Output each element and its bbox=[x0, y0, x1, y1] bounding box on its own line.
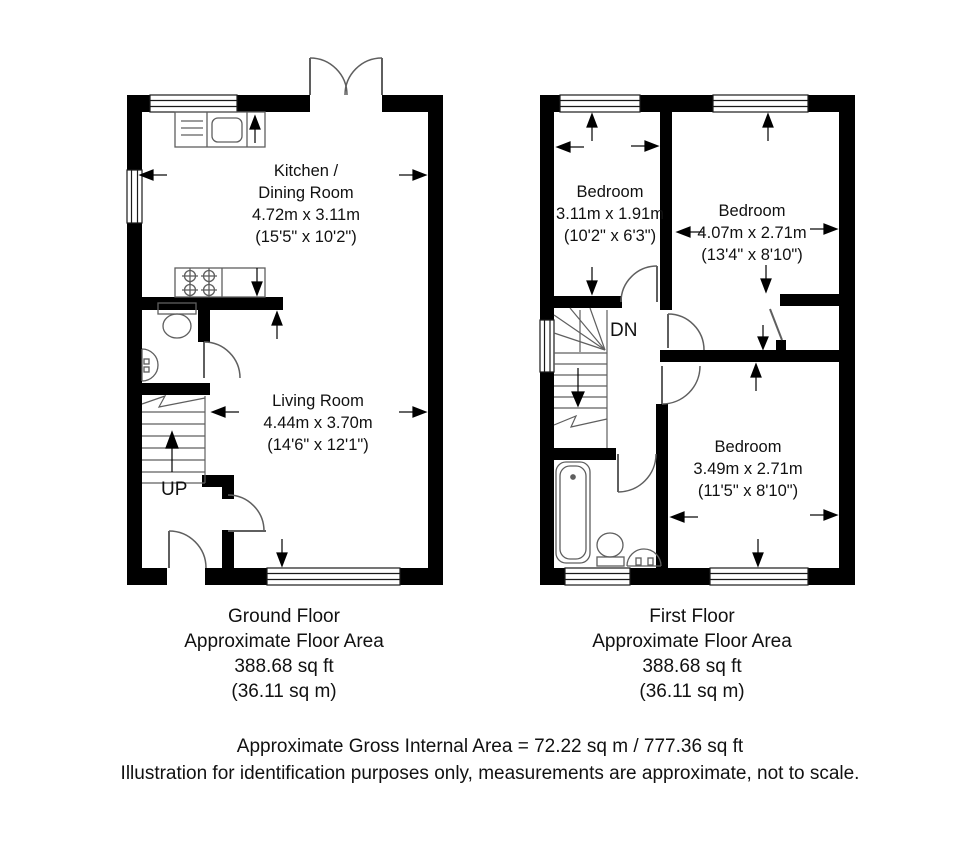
bathroom-door bbox=[618, 454, 656, 492]
dimension-arrow bbox=[671, 512, 698, 522]
bedroom3-label: Bedroom 3.49m x 2.71m (11'5" x 8'10") bbox=[693, 436, 802, 502]
wash-basin-icon bbox=[627, 549, 661, 566]
wash-basin-icon bbox=[142, 349, 158, 381]
entrance-door bbox=[169, 531, 206, 568]
floor-area-label: Approximate Floor Area bbox=[184, 629, 384, 654]
closet-jamb bbox=[776, 340, 786, 350]
window bbox=[710, 568, 808, 585]
room-dimensions-imperial: (14'6" x 12'1") bbox=[263, 434, 372, 456]
living-room-door bbox=[228, 495, 266, 531]
floor-area-sqm: (36.11 sq m) bbox=[592, 679, 792, 704]
room-dimensions-metric: 3.49m x 2.71m bbox=[693, 458, 802, 480]
window bbox=[713, 95, 808, 112]
bathroom-right-wall bbox=[656, 404, 668, 568]
room-dimensions-imperial: (11'5" x 8'10") bbox=[693, 480, 802, 502]
bathroom-top-wall bbox=[554, 448, 616, 460]
window bbox=[150, 95, 237, 112]
disclaimer: Illustration for identification purposes… bbox=[121, 760, 860, 787]
stairs-down bbox=[554, 308, 607, 448]
bedroom1-label: Bedroom 3.11m x 1.91m (10'2" x 6'3") bbox=[556, 181, 664, 247]
ground-floor-caption: Ground Floor Approximate Floor Area 388.… bbox=[184, 604, 384, 704]
room-name: Bedroom bbox=[556, 181, 664, 203]
room-dimensions-imperial: (13'4" x 8'10") bbox=[697, 244, 806, 266]
dimension-arrow bbox=[277, 539, 287, 566]
patio-double-door bbox=[310, 58, 382, 95]
dimension-arrow bbox=[810, 510, 837, 520]
wc-fixtures bbox=[142, 303, 196, 381]
floor-area-sqft: 388.68 sq ft bbox=[592, 654, 792, 679]
room-name: Dining Room bbox=[252, 182, 360, 204]
footer-notes: Approximate Gross Internal Area = 72.22 … bbox=[121, 733, 860, 787]
first-floor-plan bbox=[540, 95, 855, 585]
closet-wall bbox=[780, 294, 839, 306]
floorplan-page: Kitchen / Dining Room 4.72m x 3.11m (15'… bbox=[0, 0, 980, 851]
window bbox=[267, 568, 400, 585]
dimension-arrow bbox=[631, 141, 658, 151]
dimension-arrow bbox=[810, 224, 837, 234]
room-dimensions-metric: 4.44m x 3.70m bbox=[263, 412, 372, 434]
room-name: Kitchen / bbox=[252, 160, 360, 182]
wc-door bbox=[204, 342, 240, 378]
dimension-arrow bbox=[250, 116, 260, 143]
landing-bedroom3-wall bbox=[660, 350, 839, 362]
room-name: Bedroom bbox=[693, 436, 802, 458]
floor-area-sqm: (36.11 sq m) bbox=[184, 679, 384, 704]
stairs-up-arrow bbox=[166, 432, 178, 472]
bathroom-fixtures bbox=[556, 462, 661, 566]
bathtub-icon bbox=[556, 462, 590, 563]
stairs-down-label: DN bbox=[610, 320, 637, 342]
dimension-arrow bbox=[272, 312, 282, 339]
sink-icon bbox=[212, 118, 242, 142]
first-floor-walls bbox=[540, 95, 855, 585]
bedroom3-door bbox=[662, 366, 700, 404]
dimension-arrow bbox=[751, 364, 761, 391]
bedroom1-door bbox=[621, 266, 657, 302]
room-dimensions-metric: 4.07m x 2.71m bbox=[697, 222, 806, 244]
window bbox=[560, 95, 640, 112]
dimension-arrow bbox=[557, 142, 584, 152]
wc-bottom-wall bbox=[127, 383, 210, 395]
window bbox=[540, 320, 554, 372]
room-name: Living Room bbox=[263, 390, 372, 412]
window bbox=[127, 170, 142, 223]
floor-title: Ground Floor bbox=[184, 604, 384, 629]
room-name: Bedroom bbox=[697, 200, 806, 222]
dimension-arrow bbox=[761, 265, 771, 292]
dimension-arrow bbox=[587, 267, 597, 294]
first-floor-caption: First Floor Approximate Floor Area 388.6… bbox=[592, 604, 792, 704]
window bbox=[565, 568, 630, 585]
bedroom2-label: Bedroom 4.07m x 2.71m (13'4" x 8'10") bbox=[697, 200, 806, 266]
kitchen-living-divider-wall bbox=[127, 297, 283, 310]
stairs-up-label: UP bbox=[161, 479, 187, 501]
dimension-arrow bbox=[763, 114, 773, 141]
dimension-arrow bbox=[587, 114, 597, 141]
living-room-label: Living Room 4.44m x 3.70m (14'6" x 12'1"… bbox=[263, 390, 372, 456]
floorplan-drawing bbox=[0, 0, 980, 851]
dimension-arrow bbox=[753, 539, 763, 566]
dimension-arrow bbox=[140, 170, 167, 180]
dimension-arrow bbox=[212, 407, 239, 417]
bedroom1-bottom-wall bbox=[554, 296, 622, 308]
closet-door bbox=[770, 309, 782, 340]
hob-unit bbox=[175, 268, 265, 297]
room-dimensions-metric: 3.11m x 1.91m bbox=[556, 203, 664, 225]
bedroom2-door bbox=[668, 314, 704, 350]
floor-area-label: Approximate Floor Area bbox=[592, 629, 792, 654]
dimension-arrow bbox=[758, 325, 768, 349]
dimension-arrow bbox=[399, 407, 426, 417]
room-dimensions-metric: 4.72m x 3.11m bbox=[252, 204, 360, 226]
floor-title: First Floor bbox=[592, 604, 792, 629]
room-dimensions-imperial: (15'5" x 10'2") bbox=[252, 226, 360, 248]
gross-internal-area: Approximate Gross Internal Area = 72.22 … bbox=[121, 733, 860, 760]
hob-burners-icon bbox=[182, 268, 217, 297]
floor-area-sqft: 388.68 sq ft bbox=[184, 654, 384, 679]
stairs-up bbox=[142, 396, 205, 483]
stairs-down-arrow bbox=[572, 368, 584, 406]
wc-wall bbox=[198, 310, 210, 342]
toilet-icon bbox=[597, 533, 624, 566]
kitchen-label: Kitchen / Dining Room 4.72m x 3.11m (15'… bbox=[252, 160, 360, 248]
ground-floor-plan bbox=[127, 58, 443, 585]
dimension-arrow bbox=[399, 170, 426, 180]
dimension-arrow bbox=[252, 268, 262, 295]
room-dimensions-imperial: (10'2" x 6'3") bbox=[556, 225, 664, 247]
